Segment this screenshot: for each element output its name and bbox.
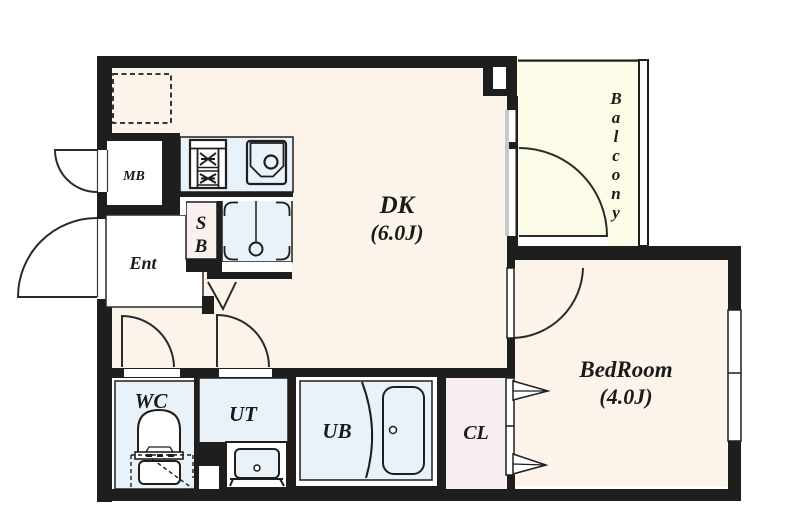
svg-text:a: a	[612, 108, 621, 127]
svg-text:B: B	[194, 236, 208, 257]
svg-text:B: B	[609, 89, 621, 108]
svg-text:o: o	[612, 165, 621, 184]
svg-text:S: S	[196, 213, 207, 234]
svg-text:y: y	[610, 203, 620, 222]
svg-text:n: n	[611, 184, 620, 203]
svg-text:MB: MB	[122, 169, 145, 184]
svg-text:Ent: Ent	[128, 253, 157, 273]
svg-text:UT: UT	[229, 402, 258, 426]
svg-text:l: l	[614, 127, 619, 146]
svg-text:UB: UB	[322, 419, 351, 443]
svg-text:c: c	[612, 146, 620, 165]
svg-text:(4.0J): (4.0J)	[599, 384, 652, 409]
svg-text:DK: DK	[379, 192, 417, 219]
svg-text:CL: CL	[463, 422, 489, 444]
svg-text:(6.0J): (6.0J)	[370, 220, 423, 245]
svg-text:BedRoom: BedRoom	[578, 357, 672, 382]
